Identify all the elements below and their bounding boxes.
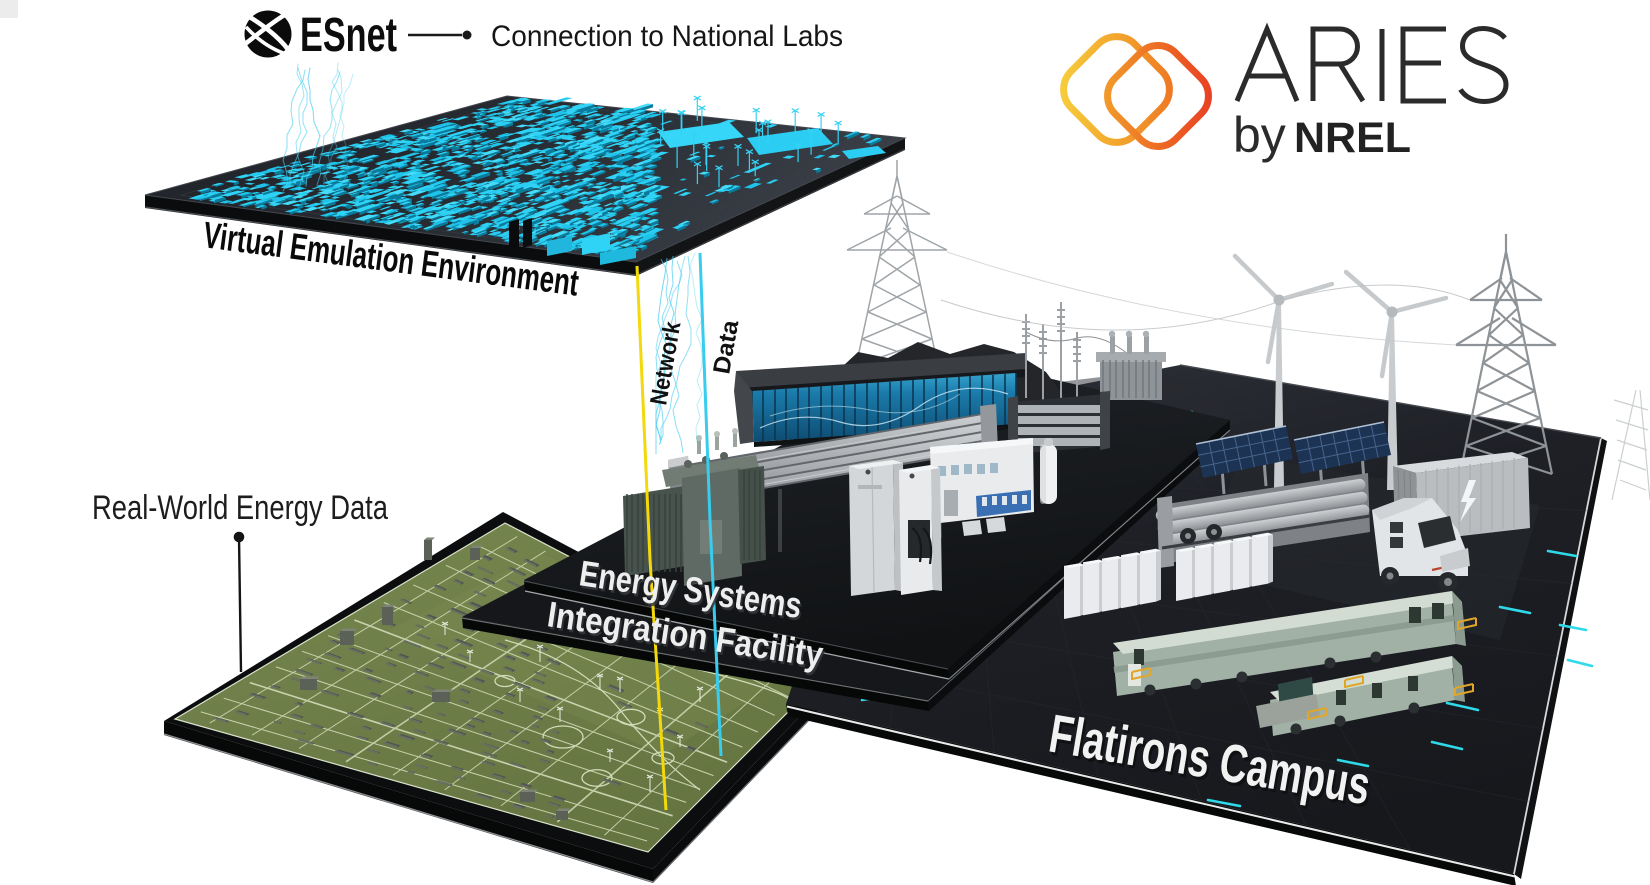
svg-text:Real-World Energy Data: Real-World Energy Data [92, 489, 388, 527]
svg-text:ESnet: ESnet [300, 9, 397, 62]
svg-text:Connection to National Labs: Connection to National Labs [491, 20, 843, 53]
svg-text:NREL: NREL [1294, 114, 1411, 162]
svg-text:by: by [1233, 107, 1286, 163]
